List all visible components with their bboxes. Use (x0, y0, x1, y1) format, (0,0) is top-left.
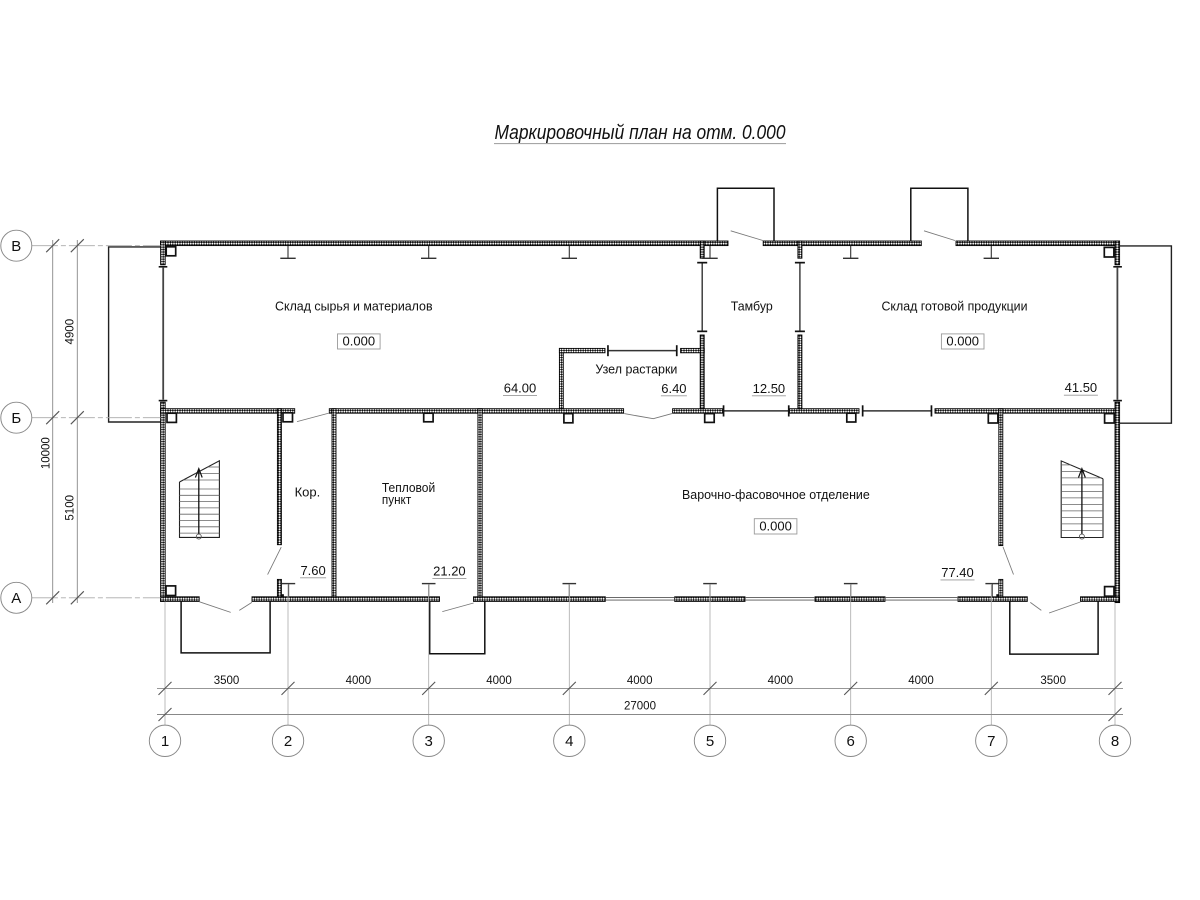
svg-text:4000: 4000 (486, 675, 512, 687)
svg-text:6: 6 (847, 733, 855, 750)
svg-text:4000: 4000 (768, 675, 794, 687)
svg-text:3500: 3500 (214, 675, 240, 687)
svg-text:64.00: 64.00 (504, 381, 537, 396)
svg-text:0.000: 0.000 (946, 334, 979, 349)
svg-text:Б: Б (11, 410, 21, 427)
svg-text:Узел растарки: Узел растарки (595, 362, 677, 377)
svg-text:2: 2 (284, 733, 292, 750)
svg-text:3500: 3500 (1040, 675, 1066, 687)
svg-text:4900: 4900 (65, 319, 77, 345)
svg-text:Тамбур: Тамбур (731, 299, 773, 314)
svg-text:3: 3 (425, 733, 433, 750)
svg-text:Склад сырья и материалов: Склад сырья и материалов (275, 299, 433, 314)
svg-text:Кор.: Кор. (295, 485, 321, 500)
svg-text:Варочно-фасовочное отделение: Варочно-фасовочное отделение (682, 487, 870, 502)
svg-text:4: 4 (565, 733, 573, 750)
svg-text:4000: 4000 (627, 675, 653, 687)
svg-text:0.000: 0.000 (343, 334, 376, 349)
svg-text:А: А (11, 590, 21, 607)
svg-text:10000: 10000 (40, 437, 52, 469)
svg-text:Склад готовой продукции: Склад готовой продукции (882, 299, 1028, 314)
svg-text:5: 5 (706, 733, 714, 750)
svg-text:27000: 27000 (624, 700, 656, 712)
svg-text:1: 1 (161, 733, 169, 750)
svg-text:8: 8 (1111, 733, 1119, 750)
svg-text:7.60: 7.60 (300, 563, 325, 578)
svg-text:4000: 4000 (346, 675, 372, 687)
svg-text:21.20: 21.20 (433, 564, 466, 579)
svg-text:12.50: 12.50 (753, 381, 786, 396)
svg-text:5100: 5100 (65, 495, 77, 521)
svg-text:41.50: 41.50 (1065, 380, 1098, 395)
svg-text:В: В (11, 238, 21, 255)
svg-text:пункт: пункт (382, 492, 411, 507)
svg-text:6.40: 6.40 (661, 381, 686, 396)
svg-text:7: 7 (987, 733, 995, 750)
svg-text:Маркировочный план на отм. 0.0: Маркировочный план на отм. 0.000 (495, 122, 787, 144)
svg-text:0.000: 0.000 (759, 519, 792, 534)
svg-text:4000: 4000 (908, 675, 934, 687)
svg-text:77.40: 77.40 (941, 565, 974, 580)
